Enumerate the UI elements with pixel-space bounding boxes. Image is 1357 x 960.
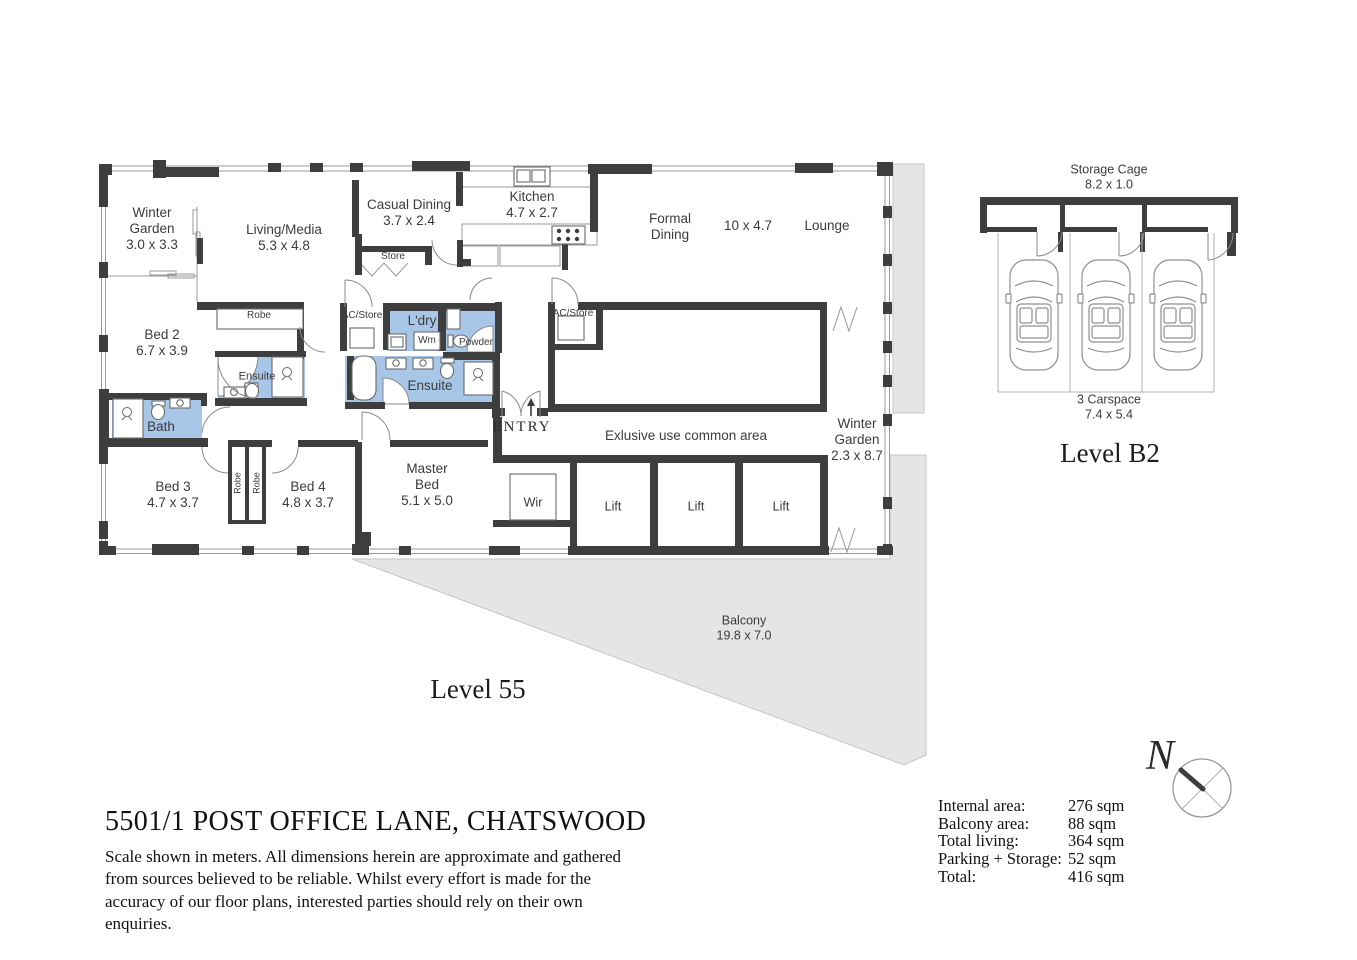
room-label-bed2: Bed 26.7 x 3.9: [136, 327, 188, 359]
room-label-bed4: Bed 44.8 x 3.7: [282, 479, 334, 511]
room-label-lift-1: Lift: [605, 500, 622, 515]
room-label-living-media: Living/Media5.3 x 4.8: [246, 222, 322, 254]
room-label-lounge: Lounge: [804, 218, 849, 234]
storage-cage-label: Storage Cage8.2 x 1.0: [1070, 162, 1147, 192]
room-label-ldry: L'dry: [408, 313, 437, 329]
room-label-bed3: Bed 34.7 x 3.7: [147, 479, 199, 511]
room-label-wir: Wir: [524, 496, 543, 511]
room-label-kitchen: Kitchen4.7 x 2.7: [506, 189, 558, 221]
disclaimer-text: Scale shown in meters. All dimensions he…: [105, 846, 653, 936]
living-lounge-dims: 10 x 4.7: [724, 218, 772, 234]
room-label-robe-bed2: Robe: [247, 310, 271, 322]
room-label-powder: Powder: [459, 337, 493, 349]
area-row: Total:416 sqm: [938, 868, 1124, 886]
balcony-label: Balcony19.8 x 7.0: [717, 613, 772, 643]
room-label-robe-right: Robe: [252, 472, 263, 494]
room-label-ac-store-w: AC/Store: [342, 310, 383, 322]
room-label-lift-3: Lift: [773, 500, 790, 515]
area-row: Parking + Storage:52 sqm: [938, 850, 1124, 868]
compass-north-label: N: [1146, 732, 1174, 782]
common-area-label: Exlusive use common area: [605, 428, 767, 444]
page-title: 5501/1 POST OFFICE LANE, CHATSWOOD: [105, 806, 653, 838]
carspace-label: 3 Carspace7.4 x 5.4: [1077, 392, 1141, 422]
room-label-master-bed: Master Bed5.1 x 5.0: [401, 461, 453, 509]
room-label-winter-garden-e: Winter Garden2.3 x 8.7: [831, 416, 883, 464]
room-label-winter-garden-nw: Winter Garden3.0 x 3.3: [126, 205, 178, 253]
entry-label: ENTRY: [492, 419, 551, 437]
area-row: Balcony area:88 sqm: [938, 815, 1124, 833]
room-label-store: Store: [381, 251, 405, 263]
room-label-bath: Bath: [147, 419, 175, 435]
room-label-formal-dining: Formal Dining: [649, 211, 691, 243]
room-label-robe-left: Robe: [233, 472, 244, 494]
level-b2-label: Level B2: [1060, 438, 1160, 470]
area-summary-table: Internal area:276 sqm Balcony area:88 sq…: [938, 797, 1124, 886]
room-label-wm: Wm: [418, 335, 436, 347]
room-label-ensuite-master: Ensuite: [407, 378, 452, 394]
area-row: Internal area:276 sqm: [938, 797, 1124, 815]
room-label-ensuite-bed2: Ensuite: [239, 371, 276, 384]
room-label-ac-store-e: AC/Store: [553, 308, 594, 320]
room-label-casual-dining: Casual Dining3.7 x 2.4: [367, 197, 451, 229]
room-label-lift-2: Lift: [688, 500, 705, 515]
level-55-label: Level 55: [430, 674, 525, 706]
floorplan-page: Winter Garden3.0 x 3.3 Living/Media5.3 x…: [0, 0, 1357, 960]
title-block: 5501/1 POST OFFICE LANE, CHATSWOOD Scale…: [105, 806, 653, 936]
area-row: Total living:364 sqm: [938, 832, 1124, 850]
